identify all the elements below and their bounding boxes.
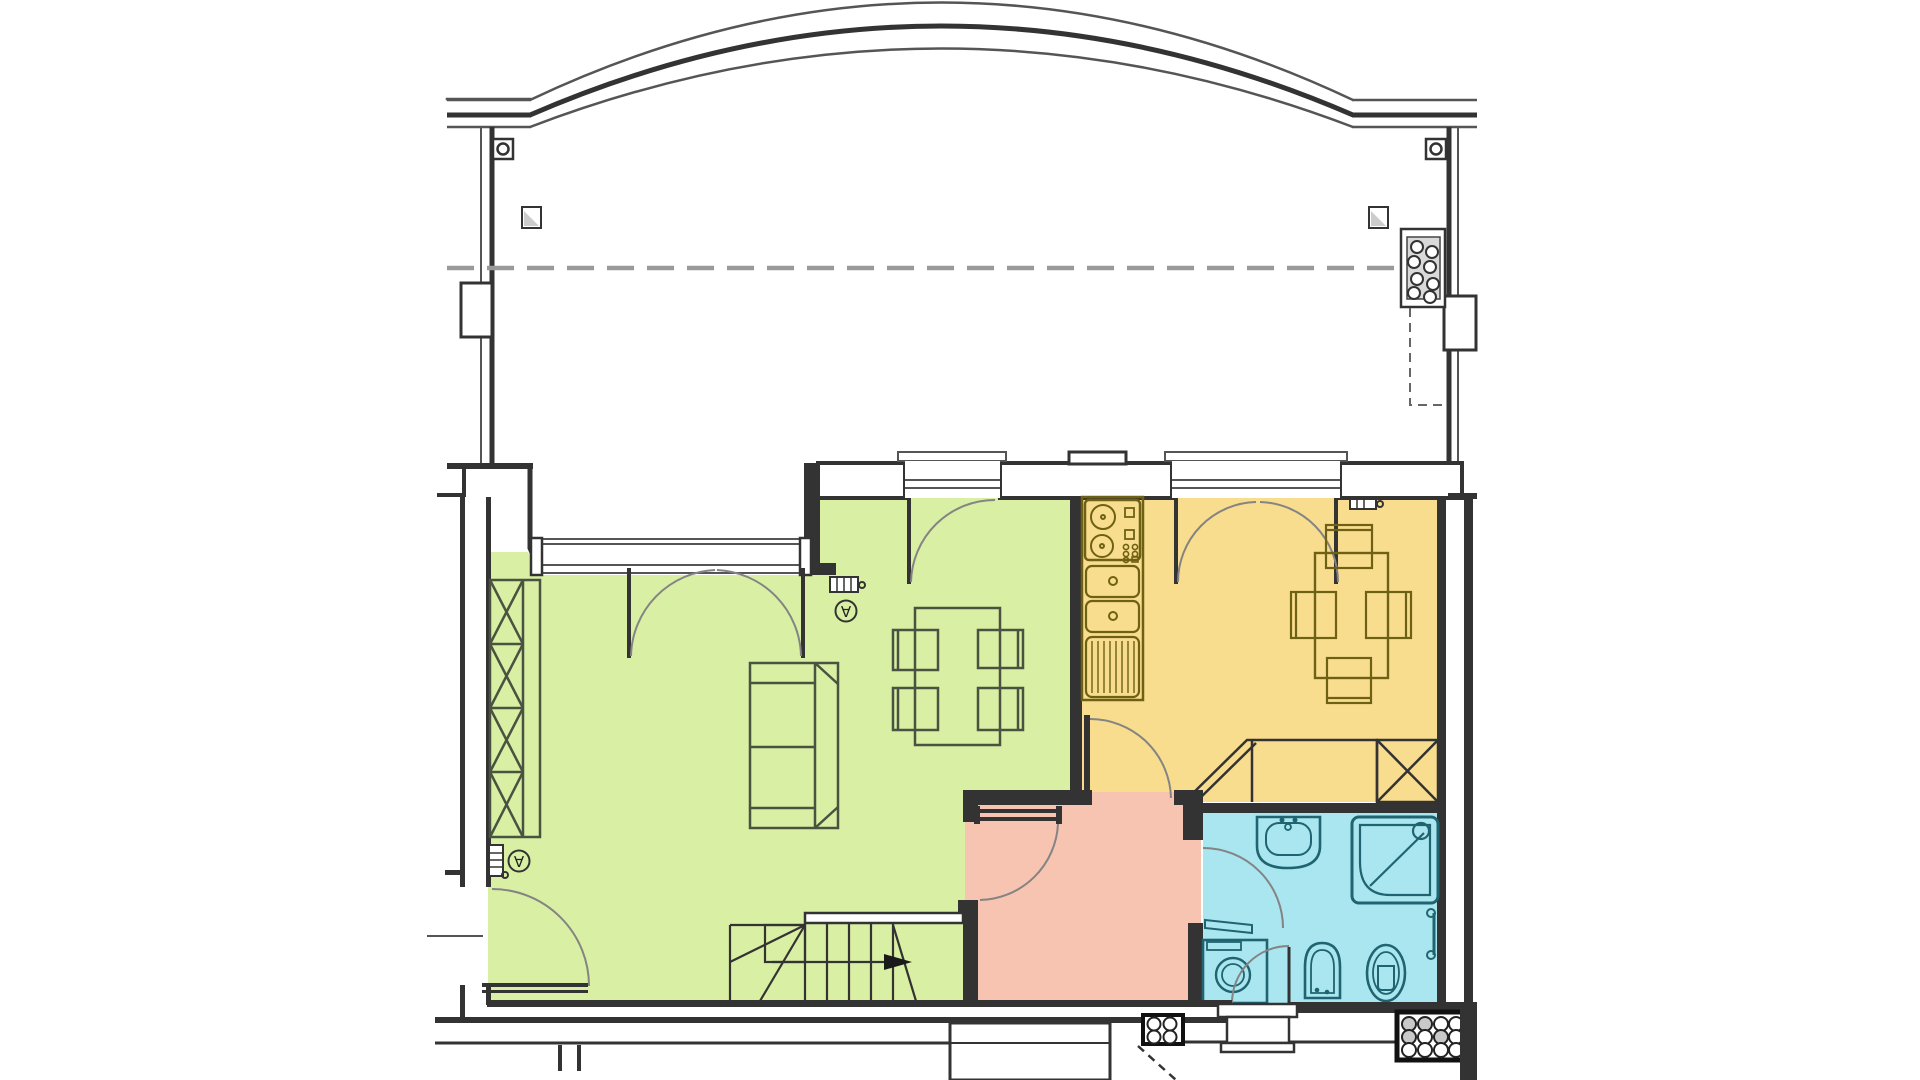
bay-window xyxy=(531,538,811,575)
window-kitchen xyxy=(1165,452,1347,498)
gate-hinge-right-icon xyxy=(1426,139,1446,159)
porch-tick xyxy=(577,1045,581,1071)
terrace-wall-right-return xyxy=(1352,100,1477,127)
wall-hall-top-left xyxy=(963,790,1092,805)
stair-bulkhead xyxy=(805,913,963,923)
gas-meter-box-icon xyxy=(1138,1015,1183,1080)
terrace-arc-inner xyxy=(530,49,1353,128)
terrace xyxy=(447,3,1477,464)
wall-pillar-left xyxy=(461,283,492,337)
wall-right-bottom xyxy=(1460,1002,1477,1080)
wall-pillar-right xyxy=(1444,296,1476,350)
floor-plan-drawing: ∀ ∀ xyxy=(0,0,1920,1080)
terrace-arc-outer xyxy=(530,3,1353,101)
planter-box-icon xyxy=(1401,229,1445,307)
terrace-wall-left-return xyxy=(447,99,531,127)
wall-living-kitchen xyxy=(1070,498,1082,792)
terrace-arc-main xyxy=(530,26,1353,115)
bottom-exterior xyxy=(435,1000,1477,1080)
wall-band-c xyxy=(1340,463,1462,498)
drain-square-left-icon xyxy=(522,207,541,228)
porch-tick xyxy=(558,1045,562,1071)
svg-text:∀: ∀ xyxy=(841,603,852,621)
wall-band-a xyxy=(818,463,905,498)
drain-grate-icon xyxy=(1397,1012,1463,1060)
kitchen-floor xyxy=(1082,466,1446,802)
wall-kitchen-bath xyxy=(1203,803,1443,813)
under-hall-porch xyxy=(950,1023,1110,1080)
drain-square-right-icon xyxy=(1369,207,1388,228)
window-living-right xyxy=(898,452,1006,498)
floor-plan-page: ∀ ∀ xyxy=(0,0,1920,1080)
svg-text:∀: ∀ xyxy=(514,853,525,871)
wall-left-exterior xyxy=(427,497,491,1023)
chimney-bump xyxy=(1069,452,1126,464)
gate-hinge-left-icon xyxy=(493,139,513,159)
wall-band-b xyxy=(1000,463,1172,498)
dashed-service-line xyxy=(1410,308,1447,405)
back-porch-steps xyxy=(1218,1004,1297,1052)
wall-right-outer xyxy=(1464,497,1473,1013)
wall-hall-bath xyxy=(1183,805,1203,840)
wall-top-left xyxy=(447,463,533,469)
wall-bottom-main xyxy=(487,1000,1232,1007)
